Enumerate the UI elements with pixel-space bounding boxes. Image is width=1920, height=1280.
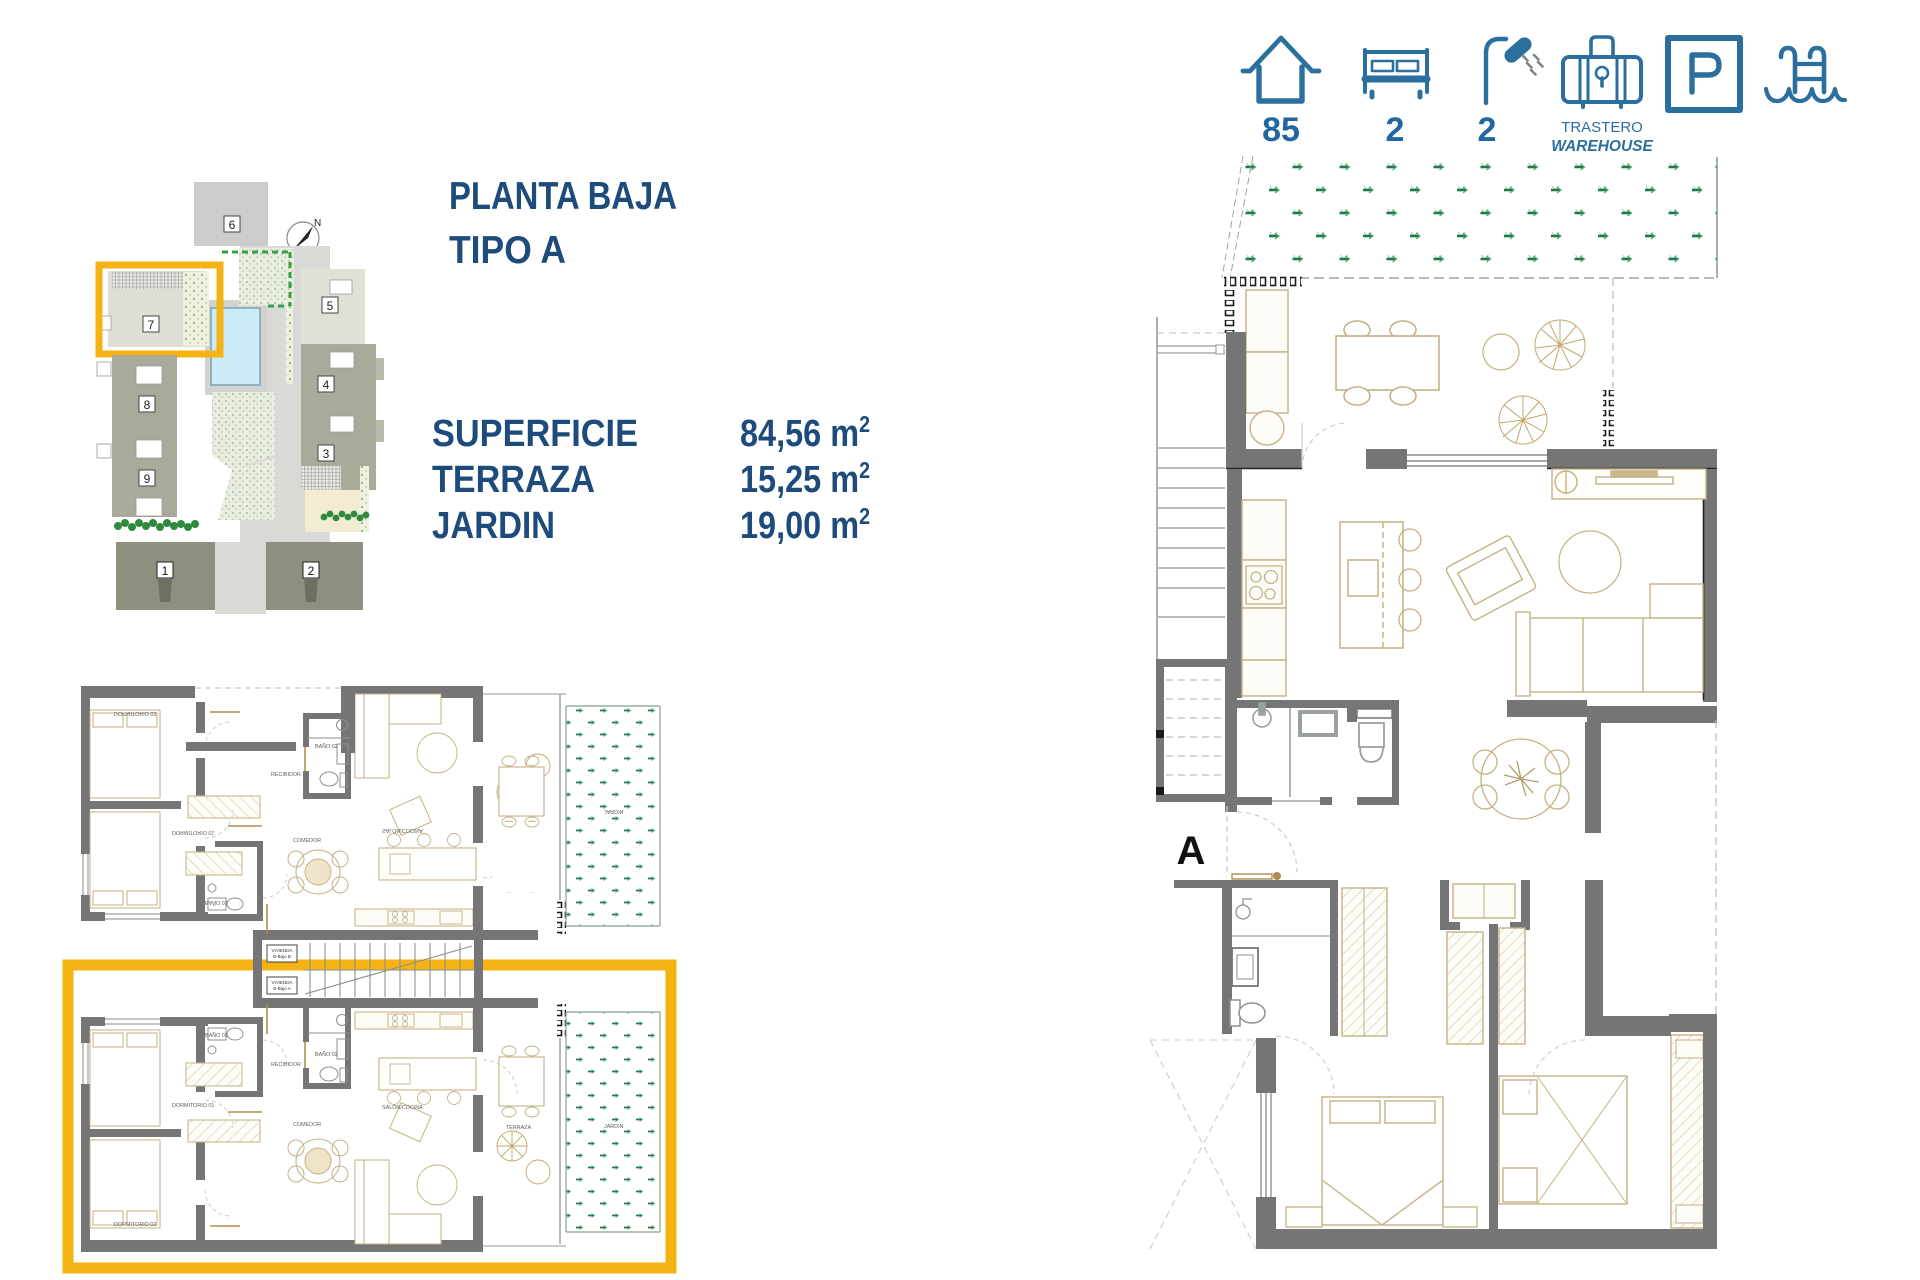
- svg-text:VIVIENDA: VIVIENDA: [271, 948, 292, 953]
- svg-text:2: 2: [308, 564, 315, 578]
- svg-text:4: 4: [323, 378, 330, 392]
- svg-text:N: N: [314, 218, 321, 229]
- svg-text:8: 8: [144, 398, 151, 412]
- svg-text:3: 3: [323, 447, 330, 461]
- svg-text:COMEDOR: COMEDOR: [293, 1122, 321, 1128]
- svg-text:JARDIN: JARDIN: [432, 505, 555, 547]
- svg-text:PLANTA BAJA: PLANTA BAJA: [449, 175, 677, 218]
- svg-text:15,25 m2: 15,25 m2: [740, 457, 870, 501]
- svg-text:TIPO A: TIPO A: [449, 229, 566, 272]
- svg-text:19,00 m2: 19,00 m2: [740, 503, 870, 547]
- svg-text:6: 6: [229, 218, 236, 232]
- svg-text:TERRAZA: TERRAZA: [432, 459, 595, 501]
- svg-text:9: 9: [144, 472, 151, 486]
- svg-text:2: 2: [1478, 111, 1497, 149]
- svg-text:84,56 m2: 84,56 m2: [740, 411, 870, 455]
- svg-text:WAREHOUSE: WAREHOUSE: [1551, 138, 1653, 155]
- svg-text:B-Bajo A: B-Bajo A: [273, 986, 291, 991]
- svg-text:RECIBIDOR: RECIBIDOR: [271, 772, 301, 778]
- svg-text:COMEDOR: COMEDOR: [293, 838, 321, 844]
- svg-text:RECIBIDOR: RECIBIDOR: [271, 1062, 301, 1068]
- svg-text:BAÑO 02: BAÑO 02: [315, 1051, 338, 1058]
- svg-text:A: A: [1177, 829, 1206, 873]
- svg-text:1: 1: [162, 564, 169, 578]
- svg-text:VIVIENDA: VIVIENDA: [271, 980, 292, 985]
- svg-text:BAÑO 02: BAÑO 02: [315, 743, 338, 750]
- svg-text:85: 85: [1262, 111, 1300, 149]
- svg-text:7: 7: [148, 318, 155, 332]
- svg-text:TRASTERO: TRASTERO: [1561, 119, 1643, 136]
- svg-text:5: 5: [327, 299, 334, 313]
- svg-text:B-Bajo B: B-Bajo B: [273, 954, 291, 959]
- svg-text:SUPERFICIE: SUPERFICIE: [432, 413, 638, 455]
- svg-text:2: 2: [1386, 111, 1405, 149]
